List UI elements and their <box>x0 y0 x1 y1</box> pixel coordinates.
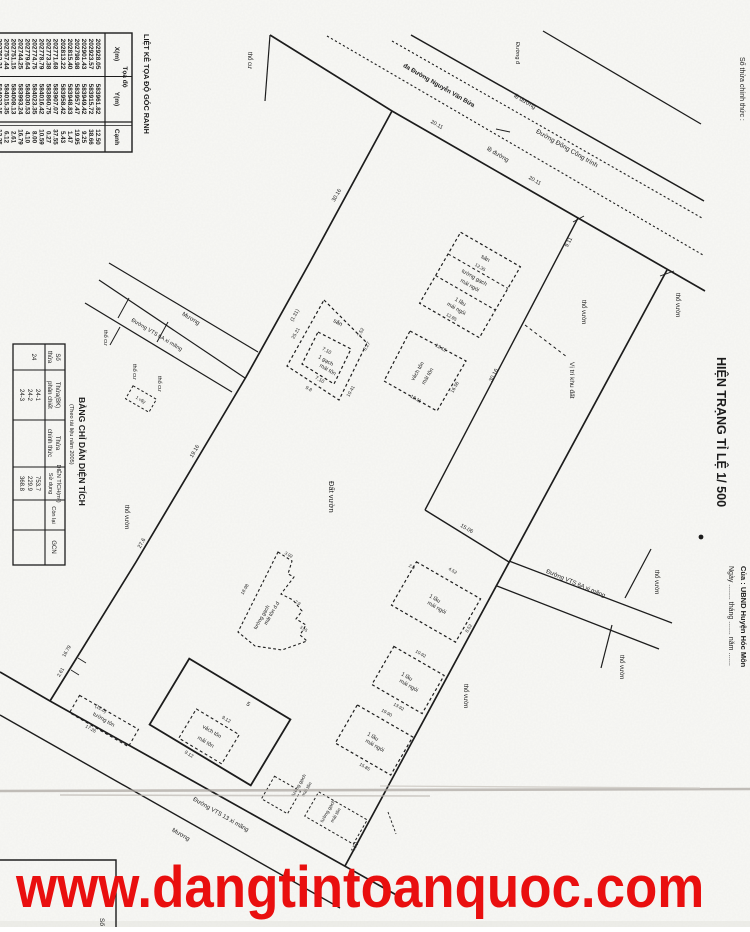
svg-text:LIỆT KÊ TỌA ĐỘ GÓC RANH: LIỆT KÊ TỌA ĐỘ GÓC RANH <box>142 34 151 134</box>
svg-text:4.10: 4.10 <box>24 131 31 144</box>
svg-text:202757.44: 202757.44 <box>2 39 9 70</box>
svg-text:202751.15: 202751.15 <box>9 39 16 70</box>
svg-text:Tọa độ: Tọa độ <box>121 66 128 87</box>
svg-text:202762.31: 202762.31 <box>0 39 2 70</box>
svg-text:Thửa: Thửa <box>54 436 61 451</box>
svg-text:24-1: 24-1 <box>34 389 40 402</box>
svg-text:Đất vườn: Đất vườn <box>327 481 336 513</box>
svg-text:thổ cư: thổ cư <box>131 364 138 380</box>
svg-text:Của : UBND Huyện Hóc Môn: Của : UBND Huyện Hóc Môn <box>739 566 748 668</box>
svg-text:584023.35: 584023.35 <box>31 84 38 115</box>
svg-text:0.27: 0.27 <box>45 131 52 144</box>
svg-text:583860.75: 583860.75 <box>45 84 52 115</box>
svg-text:583915.72: 583915.72 <box>87 84 94 115</box>
svg-text:202744.25: 202744.25 <box>17 39 24 70</box>
svg-text:13.25: 13.25 <box>0 129 2 145</box>
svg-text:thổ vườn: thổ vườn <box>653 570 660 594</box>
svg-text:37.55: 37.55 <box>52 129 59 145</box>
svg-text:16.79: 16.79 <box>17 129 24 145</box>
svg-text:583957.47: 583957.47 <box>73 84 80 115</box>
svg-text:Cạnh: Cạnh <box>113 129 120 145</box>
svg-text:thổ vườn: thổ vườn <box>123 505 130 529</box>
svg-text:thổ vườn: thổ vườn <box>674 293 681 317</box>
svg-text:(Theo tài liệu năm 2005): (Theo tài liệu năm 2005) <box>68 404 74 465</box>
svg-text:thổ cư: thổ cư <box>156 376 163 392</box>
svg-text:38.66: 38.66 <box>87 129 94 145</box>
svg-text:584030.53: 584030.53 <box>24 84 31 115</box>
svg-text:229.9: 229.9 <box>26 476 32 492</box>
svg-text:GCN: GCN <box>50 540 56 553</box>
svg-text:thổ vườn: thổ vườn <box>462 684 469 708</box>
svg-text:584015.35: 584015.35 <box>2 84 9 115</box>
svg-text:Ngày ........ tháng ....... nă: Ngày ........ tháng ....... năm ....... <box>727 566 734 666</box>
svg-text:Sử dụng: Sử dụng <box>47 473 54 494</box>
svg-text:202773.38: 202773.38 <box>45 39 52 70</box>
svg-text:202813.22: 202813.22 <box>59 39 66 70</box>
svg-text:202774.75: 202774.75 <box>31 39 38 70</box>
svg-text:2.61: 2.61 <box>9 131 16 144</box>
svg-text:753.7: 753.7 <box>34 476 40 492</box>
svg-text:583958.42: 583958.42 <box>59 84 66 115</box>
svg-text:583993.24: 583993.24 <box>17 84 24 115</box>
svg-text:202928.05: 202928.05 <box>94 39 101 70</box>
svg-text:5.43: 5.43 <box>59 131 66 144</box>
svg-text:Số: Số <box>54 353 60 361</box>
svg-text:584023.15: 584023.15 <box>0 84 2 115</box>
svg-text:24-3: 24-3 <box>18 389 24 402</box>
svg-text:24: 24 <box>30 354 36 361</box>
svg-text:202815.40: 202815.40 <box>66 39 73 70</box>
svg-text:24-2: 24-2 <box>26 389 32 402</box>
svg-text:thổ cư: thổ cư <box>102 330 109 346</box>
svg-text:phân chiết: phân chiết <box>46 381 52 409</box>
svg-text:583961.82: 583961.82 <box>94 84 101 115</box>
svg-text:12.50: 12.50 <box>94 129 101 145</box>
svg-text:202771.68: 202771.68 <box>52 39 59 70</box>
svg-text:202778.79: 202778.79 <box>38 39 45 70</box>
svg-text:584008.13: 584008.13 <box>9 84 16 115</box>
svg-text:368.8: 368.8 <box>18 476 24 492</box>
svg-text:583948.83: 583948.83 <box>66 84 73 115</box>
svg-text:583907.07: 583907.07 <box>52 84 59 115</box>
svg-text:10.59: 10.59 <box>38 129 45 145</box>
svg-text:202779.64: 202779.64 <box>24 39 31 70</box>
svg-text:Vị trí khu đất: Vị trí khu đất <box>568 362 577 399</box>
svg-text:6.12: 6.12 <box>2 131 9 144</box>
svg-text:1.47: 1.47 <box>66 131 73 144</box>
svg-text:Y(m): Y(m) <box>113 92 120 106</box>
svg-text:584016.42: 584016.42 <box>38 84 45 115</box>
svg-text:202798.98: 202798.98 <box>73 39 80 70</box>
svg-text:thổ cư: thổ cư <box>246 52 253 69</box>
svg-text:Thửa(BK): Thửa(BK) <box>54 382 61 408</box>
svg-text:8.00: 8.00 <box>31 131 38 144</box>
svg-text:thổ vườn: thổ vườn <box>580 300 587 324</box>
svg-text:thửa: thửa <box>46 351 53 364</box>
svg-text:202901.43: 202901.43 <box>80 39 87 70</box>
svg-text:DIỆN TÍCH(m²): DIỆN TÍCH(m²) <box>55 464 63 502</box>
svg-text:202923.57: 202923.57 <box>87 39 94 70</box>
svg-text:19.95: 19.95 <box>73 129 80 145</box>
svg-text:Đường đ: Đường đ <box>514 42 520 65</box>
svg-text:X(m): X(m) <box>113 47 120 61</box>
svg-text:Số thửa chính thức :: Số thửa chính thức : <box>738 57 747 121</box>
svg-text:BẢNG CHỈ DẪN DIỆN TÍCH: BẢNG CHỈ DẪN DIỆN TÍCH <box>77 397 88 506</box>
svg-text:HIỆN TRẠNG TỈ LỆ 1/ 500: HIỆN TRẠNG TỈ LỆ 1/ 500 <box>714 357 729 507</box>
svg-text:9.25: 9.25 <box>80 131 87 144</box>
svg-text:Còn lại: Còn lại <box>50 506 56 523</box>
svg-text:583949.42: 583949.42 <box>80 84 87 115</box>
svg-text:thổ vườn: thổ vườn <box>618 655 625 679</box>
svg-text:chính thức: chính thức <box>46 429 52 457</box>
